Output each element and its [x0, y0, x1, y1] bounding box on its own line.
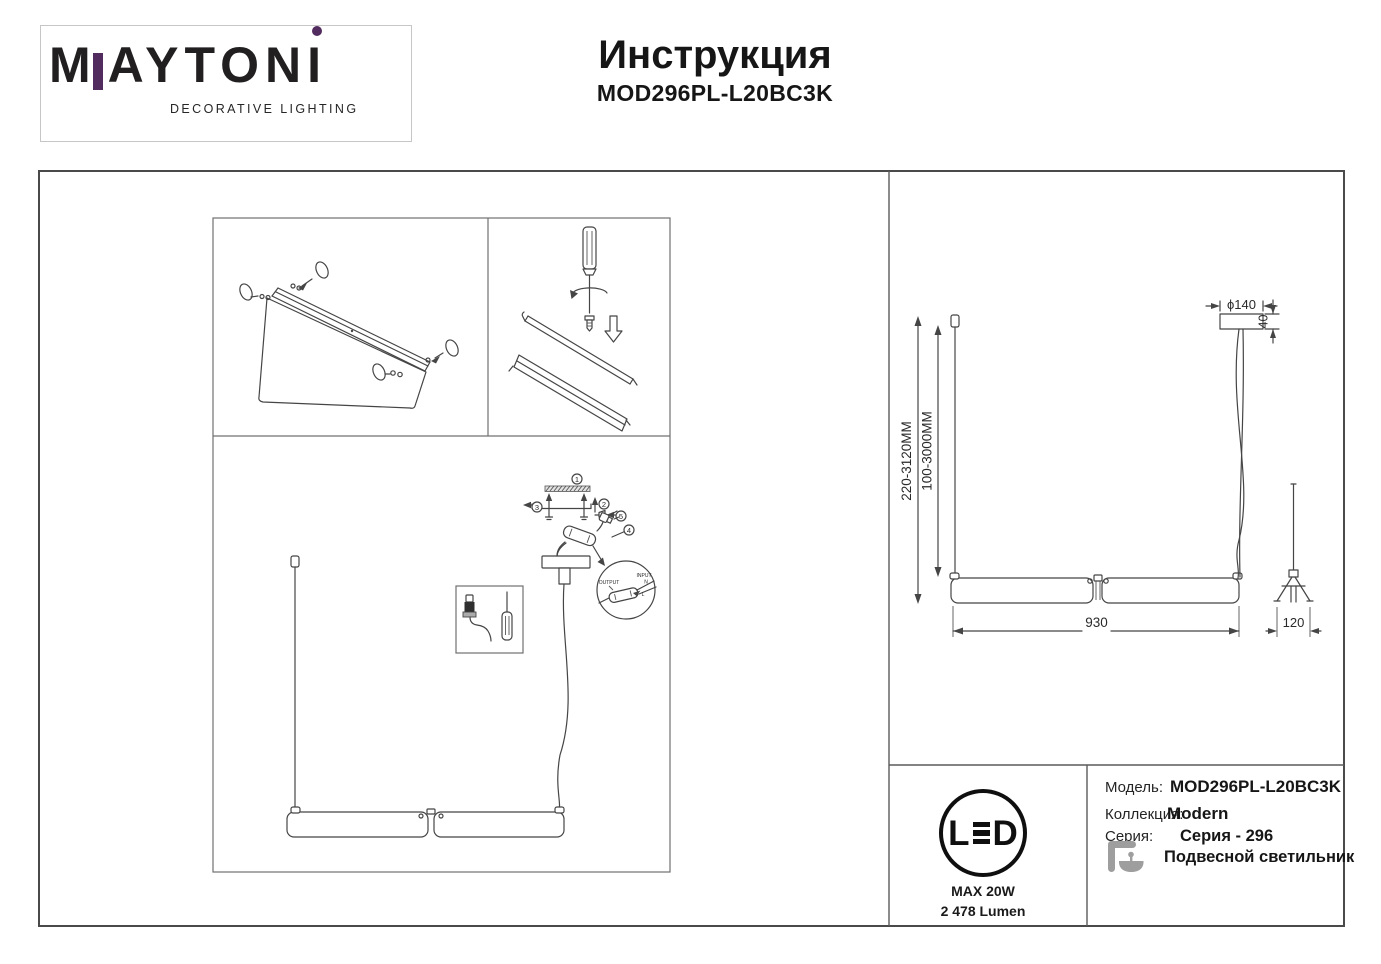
svg-text:120: 120 [1283, 615, 1305, 630]
output-label: OUTPUT [599, 580, 620, 586]
svg-text:ϕ140: ϕ140 [1227, 297, 1256, 312]
line-label: L [642, 592, 645, 598]
screwdriver-small-icon [502, 592, 512, 640]
svg-text:1: 1 [575, 475, 579, 484]
step-badge-4: 4 [612, 525, 634, 537]
led-letter-e-bars [973, 822, 990, 845]
dim-suspension-height: 100-3000MM [920, 325, 942, 577]
assembly-step1-diagram [237, 260, 460, 408]
svg-text:4: 4 [627, 526, 631, 535]
led-logo: L D [948, 816, 1018, 851]
max-power-label: MAX 20W [913, 883, 1053, 899]
series-value: Серия - 296 [1180, 827, 1273, 846]
assembly-step3-diagram: 1 2 [287, 474, 656, 837]
input-label: INPUT [637, 573, 652, 579]
dim-length: 930 [953, 606, 1239, 637]
svg-text:220-3120MM: 220-3120MM [899, 421, 914, 501]
collection-value: Modern [1167, 804, 1228, 824]
cable-grip-icon [298, 260, 331, 291]
pendant-lamp-icon [1106, 838, 1154, 881]
screw-up-right [581, 493, 588, 520]
led-letter-l: L [948, 816, 969, 851]
cable-grip-icon [431, 338, 461, 364]
neutral-label: N [644, 580, 648, 586]
led-driver [557, 511, 619, 557]
svg-text:3: 3 [535, 503, 539, 512]
lamp-front-view [950, 314, 1263, 603]
svg-text:2: 2 [602, 500, 606, 509]
wiring-detail: OUTPUT INPUT N L [597, 561, 656, 619]
svg-text:930: 930 [1085, 615, 1108, 630]
cable-grip-icon [237, 282, 270, 302]
connector-icon [463, 595, 491, 641]
lamp-end-view [1274, 484, 1313, 602]
model-label: Модель: [1105, 779, 1163, 796]
assembly-step2-diagram [509, 227, 637, 431]
svg-text:40: 40 [1257, 315, 1271, 329]
dim-width: 120 [1266, 607, 1321, 637]
screw-icon [585, 316, 594, 331]
instruction-sheet: MAYTONI DECORATIVE LIGHTING Инструкция M… [0, 0, 1381, 964]
svg-text:100-3000MM: 100-3000MM [920, 411, 935, 491]
step-badge-3: 3 [523, 502, 542, 512]
svg-text:5: 5 [619, 512, 623, 521]
dim-overall-height: 220-3120MM [899, 316, 922, 604]
cable-grip-icon [370, 362, 390, 382]
led-badge: L D [939, 789, 1027, 877]
down-arrow-icon [605, 316, 622, 342]
tools-inset [456, 586, 523, 653]
step-badge-1: 1 [572, 474, 582, 484]
led-letter-d: D [993, 816, 1018, 851]
screw-up-left [546, 493, 553, 520]
lumen-label: 2 478 Lumen [913, 903, 1053, 919]
dimension-drawing: 220-3120MM 100-3000MM [899, 297, 1321, 637]
screwdriver-icon [583, 227, 596, 313]
model-value: MOD296PL-L20BC3K [1170, 777, 1341, 797]
pendant-assembly [287, 542, 590, 837]
step-badge-2: 2 [592, 497, 609, 512]
product-type-value: Подвесной светильник [1164, 848, 1354, 867]
dim-canopy-diameter: ϕ140 [1206, 297, 1277, 312]
